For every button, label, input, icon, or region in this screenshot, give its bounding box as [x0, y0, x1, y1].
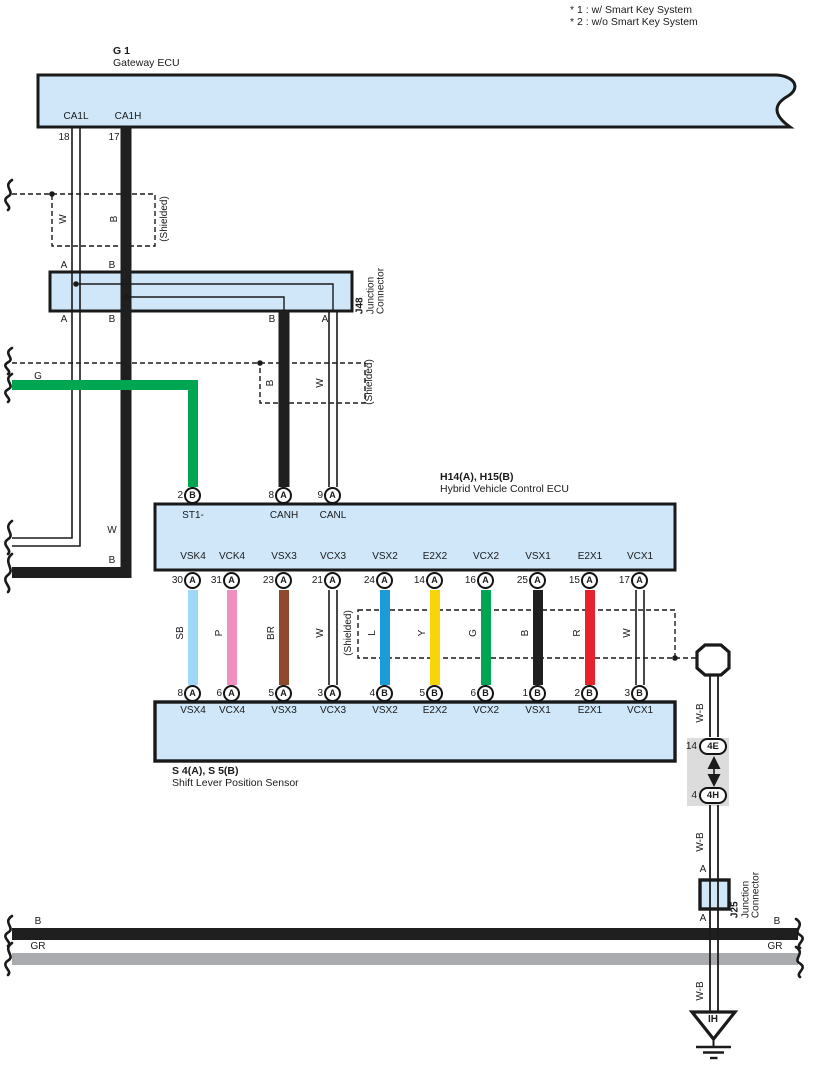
- shift-sensor-code: S 4(A), S 5(B): [172, 766, 239, 777]
- gateway-ecu-name: Gateway ECU: [113, 58, 180, 69]
- wire-canl-white: [329, 311, 337, 487]
- hv-ecu-canl-connector-letter: A: [324, 487, 341, 504]
- j25-top-pin-a: A: [700, 864, 707, 875]
- sensor-pin-number: 2: [554, 688, 580, 700]
- shielded-label-2: (Shielded): [365, 359, 375, 405]
- sensor-pin-number: 1: [502, 688, 528, 700]
- hv-ecu-canh-number: 8: [248, 490, 274, 502]
- shield-ground-symbol: [697, 645, 729, 675]
- sensor-pin-number: 4: [349, 688, 375, 700]
- hv-ecu-pin-label-e2x1: E2X1: [578, 551, 602, 562]
- wire-label-w-shield2: W: [316, 378, 326, 387]
- sensor-pin-number: 5: [248, 688, 274, 700]
- junction-j25-name-line2: Connector: [751, 872, 762, 918]
- inline-connector-4h-number: 4: [671, 790, 697, 802]
- hv-ecu-pin-number: 25: [502, 575, 528, 587]
- hv-ecu-canl-number: 9: [297, 490, 323, 502]
- wire-color-label-b: B: [521, 630, 531, 637]
- junction-j25-code: J25: [730, 872, 741, 918]
- gateway-pin-ca1h-number: 17: [108, 132, 119, 143]
- wire-color-label-w: W: [316, 628, 326, 637]
- hv-ecu-pin-connector-letter: A: [631, 572, 648, 589]
- hv-ecu-st1-number: 2: [157, 490, 183, 502]
- sensor-pin-label-vcx2: VCX2: [473, 705, 499, 716]
- j48-bottom-pin-b1: B: [109, 314, 116, 325]
- inline-connector-4e-number: 14: [671, 741, 697, 753]
- sensor-pin-label-vcx1: VCX1: [627, 705, 653, 716]
- wire-label-b-shield2: B: [266, 380, 276, 387]
- wire-color-label-p: P: [215, 630, 225, 637]
- bus-wire-w-9: [636, 590, 644, 685]
- continuation-mark: [5, 521, 12, 554]
- hv-ecu-pin-label-vcx2: VCX2: [473, 551, 499, 562]
- sensor-pin-label-e2x2: E2X2: [423, 705, 447, 716]
- wire-label-wb-1: W-B: [696, 703, 706, 722]
- bus-wire-w-3: [329, 590, 337, 685]
- wire-label-w-shield1: W: [59, 214, 69, 223]
- sensor-pin-number: 3: [297, 688, 323, 700]
- shielded-label-3: (Shielded): [344, 610, 354, 656]
- sensor-pin-label-vsx1: VSX1: [525, 705, 551, 716]
- hv-ecu-pin-number: 21: [297, 575, 323, 587]
- hv-ecu-pin-connector-letter: A: [581, 572, 598, 589]
- sensor-pin-label-vsx4: VSX4: [180, 705, 206, 716]
- wire-label-wb-3: W-B: [696, 981, 706, 1000]
- junction-j25-box: [700, 880, 729, 909]
- wire-color-label-sb: SB: [176, 626, 186, 639]
- hv-ecu-name: Hybrid Vehicle Control ECU: [440, 484, 569, 495]
- hv-ecu-pin-connector-letter: A: [223, 572, 240, 589]
- sensor-pin-connector-letter: B: [581, 685, 598, 702]
- continuation-mark: [5, 943, 12, 975]
- continuation-mark: [5, 180, 12, 210]
- wire-color-label-l: L: [368, 630, 378, 636]
- hv-ecu-pin-label-vsx2: VSX2: [372, 551, 398, 562]
- hv-ecu-pin-number: 16: [450, 575, 476, 587]
- gateway-pin-ca1l: CA1L: [63, 111, 88, 122]
- hv-ecu-pin-number: 17: [604, 575, 630, 587]
- hv-ecu-pin-canh-label: CANH: [270, 510, 298, 521]
- gateway-pin-ca1l-number: 18: [58, 132, 69, 143]
- j48-top-pin-a: A: [61, 260, 68, 271]
- ground-code: IH: [708, 1014, 718, 1025]
- note-smart-key-1: * 1 : w/ Smart Key System: [570, 5, 692, 16]
- continuation-mark: [5, 348, 12, 374]
- sensor-pin-number: 8: [157, 688, 183, 700]
- sensor-pin-label-vsx3: VSX3: [271, 705, 297, 716]
- j48-bottom-pin-b2: B: [269, 314, 276, 325]
- sensor-pin-connector-letter: B: [376, 685, 393, 702]
- gateway-pin-ca1h: CA1H: [115, 111, 142, 122]
- sensor-pin-label-vcx4: VCX4: [219, 705, 245, 716]
- sensor-pin-connector-letter: B: [529, 685, 546, 702]
- continuation-mark: [5, 374, 12, 402]
- bottom-wire-gr-label-left: GR: [31, 941, 46, 952]
- continuation-mark: [796, 919, 803, 948]
- hv-ecu-pin-label-vsk4: VSK4: [180, 551, 206, 562]
- bottom-wire-gr-label-right: GR: [768, 941, 783, 952]
- continuation-mark: [796, 947, 803, 977]
- inline-connector-4h: 4H: [699, 787, 727, 804]
- hv-ecu-pin-st1-label: ST1-: [182, 510, 204, 521]
- hv-ecu-pin-label-vsx3: VSX3: [271, 551, 297, 562]
- gateway-ecu-code: G 1: [113, 46, 130, 57]
- sensor-pin-label-e2x1: E2X1: [578, 705, 602, 716]
- gateway-ecu-box: [38, 75, 795, 127]
- hv-ecu-pin-number: 14: [399, 575, 425, 587]
- wire-color-label-r: R: [573, 629, 583, 636]
- hv-ecu-pin-number: 31: [196, 575, 222, 587]
- wire-label-wb-2: W-B: [696, 832, 706, 851]
- sensor-pin-number: 3: [604, 688, 630, 700]
- hv-ecu-pin-connector-letter: A: [529, 572, 546, 589]
- hv-ecu-pin-label-vcx3: VCX3: [320, 551, 346, 562]
- wire-label-green: G: [34, 371, 42, 382]
- junction-j48-label: J48 Junction Connector: [355, 268, 387, 314]
- sensor-pin-connector-letter: B: [477, 685, 494, 702]
- hv-ecu-pin-connector-letter: A: [376, 572, 393, 589]
- junction-j25-label: J25 Junction Connector: [730, 872, 762, 918]
- j48-bottom-pin-a2: A: [322, 314, 329, 325]
- hv-ecu-code: H14(A), H15(B): [440, 472, 514, 483]
- hv-ecu-pin-label-vcx1: VCX1: [627, 551, 653, 562]
- wire-ca1l-white: [12, 127, 80, 546]
- sensor-pin-number: 5: [399, 688, 425, 700]
- hv-ecu-pin-connector-letter: A: [275, 572, 292, 589]
- wire-label-b-exit: B: [109, 555, 116, 566]
- sensor-pin-label-vcx3: VCX3: [320, 705, 346, 716]
- j48-bottom-pin-a1: A: [61, 314, 68, 325]
- sensor-pin-connector-letter: A: [275, 685, 292, 702]
- continuation-mark: [5, 554, 12, 592]
- shield-junction-dots: [49, 191, 678, 661]
- wire-color-label-g: G: [469, 629, 479, 637]
- sensor-pin-connector-letter: A: [324, 685, 341, 702]
- hv-ecu-pin-number: 15: [554, 575, 580, 587]
- bottom-wire-b-label-right: B: [774, 916, 781, 927]
- continuation-mark: [5, 916, 12, 946]
- shielded-label-1: (Shielded): [160, 196, 170, 242]
- hv-ecu-pin-number: 24: [349, 575, 375, 587]
- sensor-pin-connector-letter: B: [426, 685, 443, 702]
- note-smart-key-2: * 2 : w/o Smart Key System: [570, 17, 698, 28]
- bottom-wire-b-label-left: B: [35, 916, 42, 927]
- hv-ecu-pin-label-vsx1: VSX1: [525, 551, 551, 562]
- hv-ecu-pin-connector-letter: A: [477, 572, 494, 589]
- hv-ecu-canh-connector-letter: A: [275, 487, 292, 504]
- j48-top-pin-b: B: [109, 260, 116, 271]
- inline-connector-4e: 4E: [699, 738, 727, 755]
- hv-ecu-pin-connector-letter: A: [426, 572, 443, 589]
- diagram-graphics: [0, 0, 817, 1065]
- sensor-pin-number: 6: [196, 688, 222, 700]
- hv-ecu-pin-number: 23: [248, 575, 274, 587]
- wire-label-w-exit: W: [107, 525, 116, 536]
- junction-j48-code: J48: [355, 268, 366, 314]
- wire-label-b-shield1: B: [110, 216, 120, 223]
- wiring-diagram: * 1 : w/ Smart Key System * 2 : w/o Smar…: [0, 0, 817, 1065]
- j25-bottom-pin-a: A: [700, 913, 707, 924]
- wire-st1-green: [12, 385, 193, 487]
- wire-color-label-y: Y: [418, 630, 428, 637]
- hv-ecu-pin-connector-letter: A: [324, 572, 341, 589]
- sensor-pin-connector-letter: B: [631, 685, 648, 702]
- hv-ecu-pin-canl-label: CANL: [320, 510, 347, 521]
- hv-ecu-pin-label-e2x2: E2X2: [423, 551, 447, 562]
- junction-j48-box: [50, 272, 352, 311]
- hv-ecu-st1-connector-letter: B: [184, 487, 201, 504]
- sensor-pin-connector-letter: A: [223, 685, 240, 702]
- sensor-pin-number: 6: [450, 688, 476, 700]
- shift-sensor-name: Shift Lever Position Sensor: [172, 778, 299, 789]
- hv-ecu-pin-number: 30: [157, 575, 183, 587]
- sensor-pin-label-vsx2: VSX2: [372, 705, 398, 716]
- hv-ecu-pin-label-vck4: VCK4: [219, 551, 245, 562]
- wire-color-label-br: BR: [267, 626, 277, 640]
- junction-j48-name-line2: Connector: [376, 268, 387, 314]
- wire-color-label-w: W: [623, 628, 633, 637]
